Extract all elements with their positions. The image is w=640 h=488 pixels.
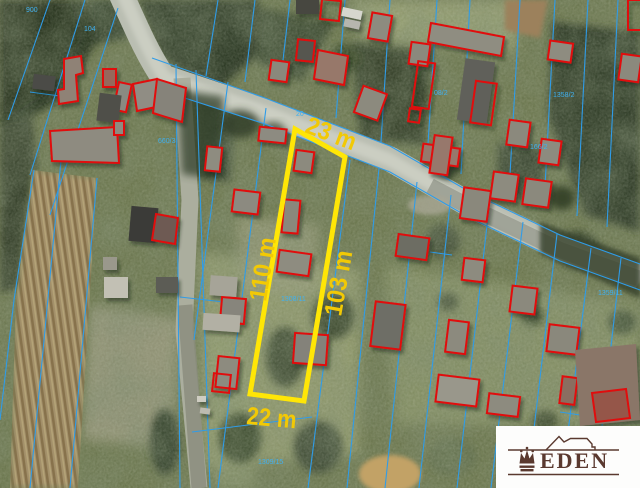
svg-text:22 m: 22 m [245,402,297,434]
svg-text:1309/15: 1309/15 [258,459,283,466]
svg-text:08/2: 08/2 [434,90,448,97]
svg-text:1308/11: 1308/11 [281,296,306,303]
svg-text:660/3: 660/3 [158,138,176,145]
svg-text:900: 900 [26,7,38,14]
svg-text:EDEN: EDEN [540,448,609,473]
svg-text:20: 20 [296,111,304,118]
svg-text:1359/11: 1359/11 [598,290,623,297]
svg-text:166/2: 166/2 [530,144,548,151]
svg-text:104: 104 [84,26,96,33]
svg-text:1358/2: 1358/2 [553,92,575,99]
